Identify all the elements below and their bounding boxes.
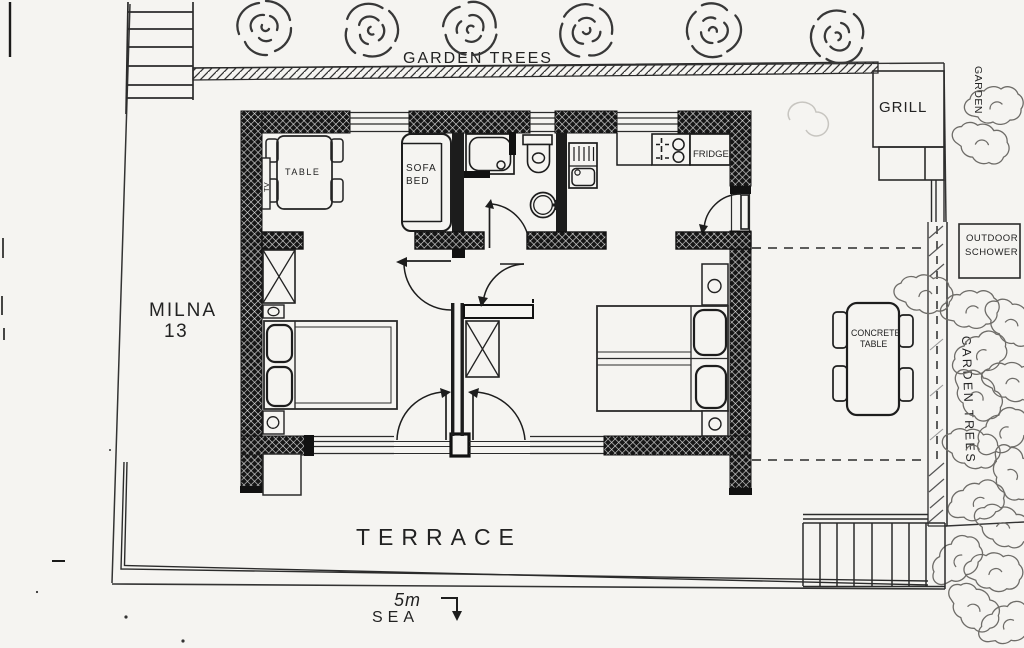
svg-text:GRILL: GRILL — [879, 99, 927, 116]
svg-text:SOFA: SOFA — [406, 163, 437, 174]
svg-text:13: 13 — [164, 321, 188, 342]
svg-text:MILNA: MILNA — [149, 300, 217, 321]
svg-text:SEA: SEA — [372, 609, 419, 626]
svg-text:5m: 5m — [394, 590, 421, 610]
svg-text:TABLE: TABLE — [860, 339, 887, 349]
svg-text:CONCRETE: CONCRETE — [851, 328, 900, 338]
svg-text:BED: BED — [406, 176, 430, 187]
svg-text:TABLE: TABLE — [285, 167, 320, 177]
svg-text:OUTDOOR: OUTDOOR — [966, 233, 1018, 244]
svg-text:TERRACE: TERRACE — [356, 524, 522, 550]
svg-text:TV: TV — [262, 182, 271, 192]
svg-text:GARDEN TREES: GARDEN TREES — [403, 50, 553, 67]
svg-text:SCHOWER: SCHOWER — [965, 247, 1018, 258]
svg-text:GARDEN: GARDEN — [972, 66, 984, 114]
svg-text:FRIDGE: FRIDGE — [693, 149, 729, 160]
